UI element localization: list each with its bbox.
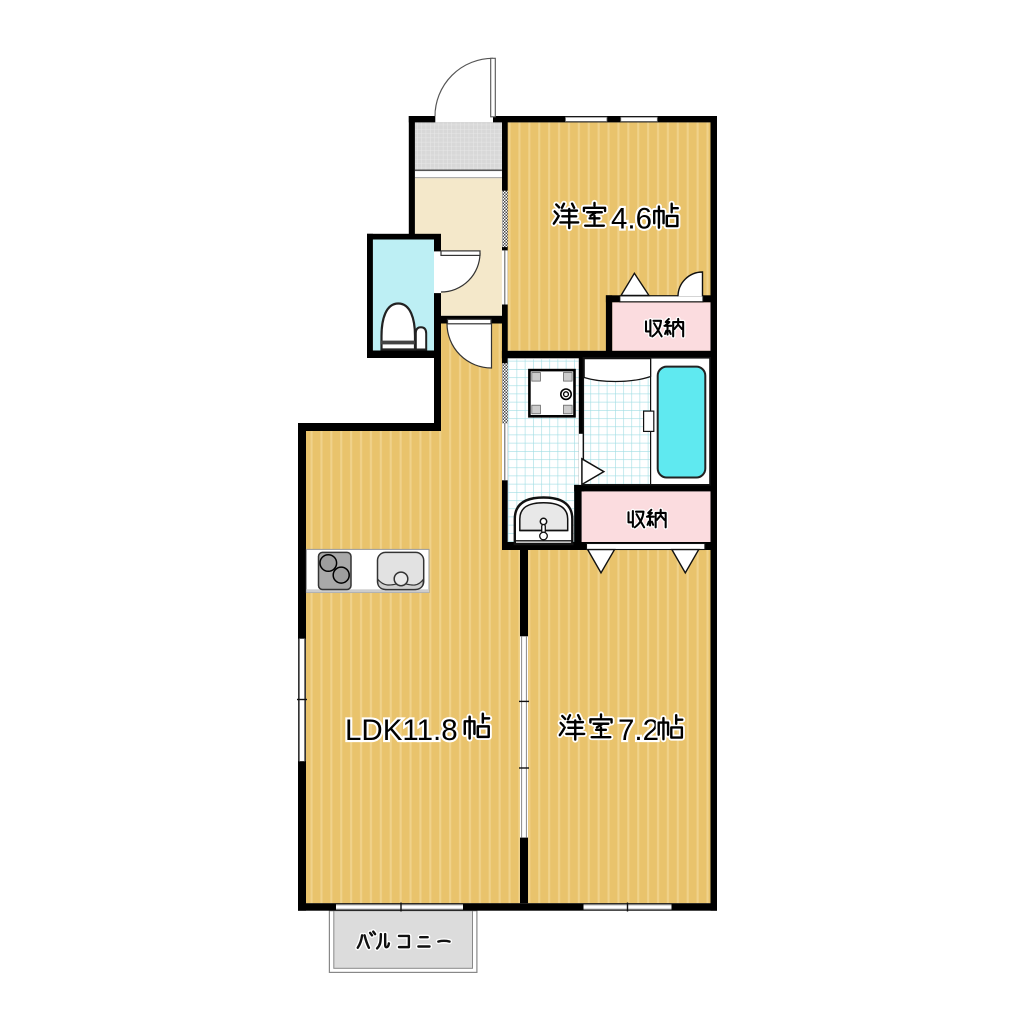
- svg-text:7.2: 7.2: [618, 714, 659, 747]
- svg-text:LDK11.8: LDK11.8: [345, 714, 458, 747]
- svg-text:4.6: 4.6: [611, 203, 652, 236]
